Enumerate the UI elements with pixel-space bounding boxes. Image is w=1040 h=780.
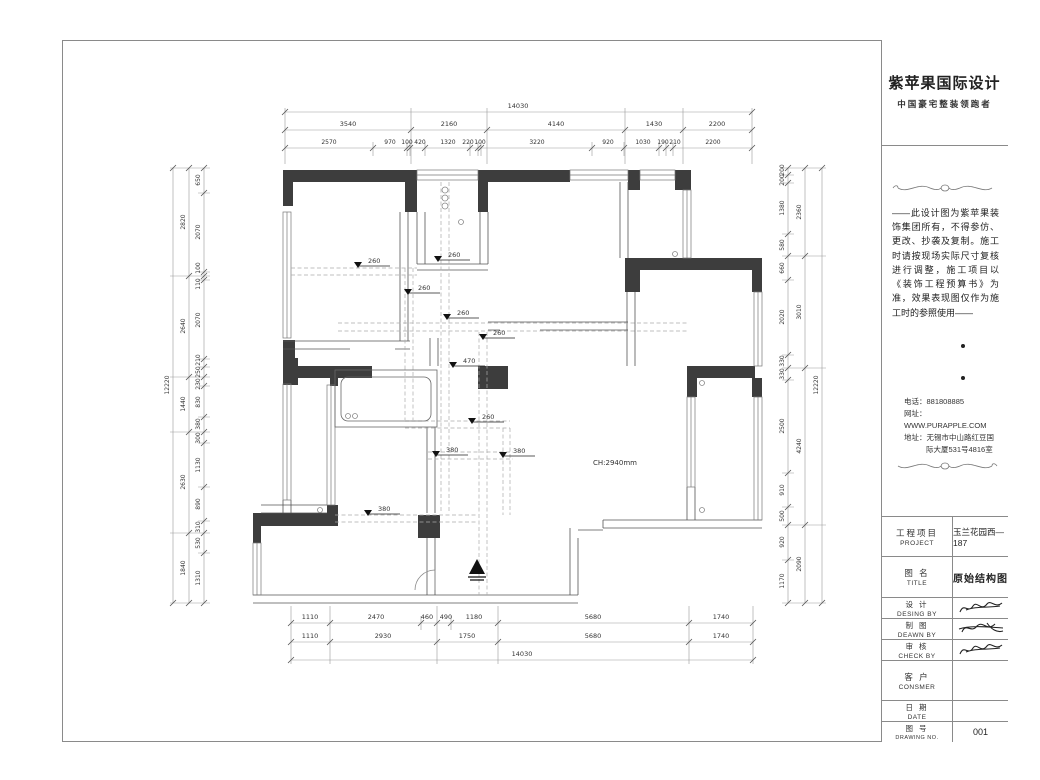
dot <box>961 376 965 380</box>
consumer-value <box>953 661 1008 700</box>
dim-label: 2820 <box>180 214 187 229</box>
check-label-en: CHECK BY <box>898 653 935 660</box>
dim-label: 1380 <box>779 200 786 215</box>
title-label-en: TITLE <box>907 580 927 587</box>
copyright-disclaimer: ——此设计图为紫苹果装饰集团所有，不得参仿、更改、抄袭及复制。施工时请按现场实际… <box>892 206 999 320</box>
check-label-cn: 审 核 <box>905 641 928 652</box>
dim-label: 2200 <box>705 139 720 146</box>
dim-label: 1180 <box>466 613 483 621</box>
structural-walls <box>253 170 762 543</box>
project-value: 玉兰花园西—187 <box>953 517 1008 556</box>
dim-label: 5680 <box>585 613 602 621</box>
dim-label: 210 <box>195 354 202 366</box>
dim-label: 220 <box>462 139 474 146</box>
ceiling-height-note: CH:2940mm <box>593 459 637 467</box>
beam-label: 260 <box>493 329 505 337</box>
beam-label: 260 <box>418 284 430 292</box>
consumer-label-en: CONSMER <box>899 684 936 691</box>
contact-address-line2: 际大厦531号4816室 <box>904 444 1006 456</box>
signature-scribble <box>956 641 1006 659</box>
dim-label: 3010 <box>796 304 803 319</box>
dim-label: 210 <box>669 139 681 146</box>
dim-label: 1440 <box>180 396 187 411</box>
dim-label: 310 <box>195 521 202 533</box>
date-label-cn: 日 期 <box>905 702 928 713</box>
ornament-flourish-icon <box>890 180 1000 196</box>
dim-label: 1320 <box>440 139 455 146</box>
drawn-label-en: DEAWN BY <box>898 632 936 639</box>
dim-label: 110 <box>195 278 202 290</box>
entry-door-arc <box>415 570 435 590</box>
drawn-label-cn: 制 图 <box>905 620 928 631</box>
dim-label: 14030 <box>508 102 529 110</box>
dim-label: 1740 <box>713 632 730 640</box>
dim-label: 330 <box>779 355 786 367</box>
dot <box>961 344 965 348</box>
beam-label: 380 <box>378 505 390 513</box>
dim-label: 1430 <box>646 120 663 128</box>
dim-label: 100 <box>195 262 202 274</box>
dim-label: 200 <box>779 164 786 176</box>
beam-label: 380 <box>513 447 525 455</box>
dim-label: 2500 <box>779 418 786 433</box>
dim-label: 2630 <box>180 474 187 489</box>
drawn-by-row: 制 图DEAWN BY <box>882 618 1008 639</box>
design-label-en: DESING BY <box>897 611 937 618</box>
dim-label: 14030 <box>512 650 533 658</box>
company-tagline: 中国豪宅整装领跑者 <box>882 98 1007 110</box>
date-row: 日 期DATE <box>882 700 1008 721</box>
dim-label: 920 <box>779 536 786 548</box>
drawing-no-label-cn: 图 号 <box>905 723 928 734</box>
divider <box>882 145 1008 146</box>
dim-label: 12220 <box>813 375 820 394</box>
partition-walls <box>253 182 762 603</box>
beam-label: 260 <box>457 309 469 317</box>
consumer-label-cn: 客 户 <box>904 671 929 683</box>
date-value <box>953 701 1008 721</box>
dim-label: 580 <box>779 239 786 251</box>
dim-label: 1750 <box>459 632 476 640</box>
dim-label: 2020 <box>779 309 786 324</box>
dim-label: 1310 <box>195 570 202 585</box>
title-block-table: 工程项目PROJECT 玉兰花园西—187 图 名TITLE 原始结构图 设 计… <box>882 516 1008 742</box>
dim-label: 2470 <box>368 613 385 621</box>
consumer-row: 客 户CONSMER <box>882 660 1008 700</box>
dim-label: 420 <box>414 139 426 146</box>
dim-label: 1170 <box>779 573 786 588</box>
dim-label: 4240 <box>796 438 803 453</box>
project-row: 工程项目PROJECT 玉兰花园西—187 <box>882 516 1008 556</box>
drawing-no-value: 001 <box>953 722 1008 742</box>
beam-label: 260 <box>448 251 460 259</box>
dim-label: 660 <box>779 262 786 274</box>
dim-label: 830 <box>195 396 202 408</box>
dim-label: 1110 <box>302 632 319 640</box>
dim-label: 5680 <box>585 632 602 640</box>
dim-label: 3540 <box>340 120 357 128</box>
dim-label: 2160 <box>441 120 458 128</box>
dim-label: 2360 <box>796 204 803 219</box>
dim-label: 1030 <box>635 139 650 146</box>
dim-label: 2200 <box>709 120 726 128</box>
dim-label: 190 <box>657 139 669 146</box>
dim-label: 910 <box>779 484 786 496</box>
date-label-en: DATE <box>908 714 927 721</box>
dim-label: 1740 <box>713 613 730 621</box>
dim-label: 460 <box>421 613 433 621</box>
beam-label: 470 <box>463 357 475 365</box>
dim-label: 890 <box>195 498 202 510</box>
design-label-cn: 设 计 <box>905 599 928 610</box>
company-logo: 紫苹果国际设计 <box>882 72 1007 93</box>
design-by-row: 设 计DESING BY <box>882 597 1008 618</box>
dim-label: 500 <box>779 510 786 522</box>
signature-scribble <box>956 620 1006 638</box>
dim-label: 970 <box>384 139 396 146</box>
dim-label: 1840 <box>180 560 187 575</box>
dim-label: 530 <box>195 537 202 549</box>
drawing-title-value: 原始结构图 <box>953 557 1008 597</box>
title-label-cn: 图 名 <box>904 567 929 579</box>
dim-label: 300 <box>195 432 202 444</box>
dim-label: 2070 <box>195 312 202 327</box>
dim-label: 920 <box>602 139 614 146</box>
beam-label: 380 <box>446 446 458 454</box>
bathtub <box>335 370 437 427</box>
project-label-en: PROJECT <box>900 540 934 547</box>
contact-website: 网址：WWW.PURAPPLE.COM <box>904 408 1006 432</box>
dim-label: 490 <box>440 613 452 621</box>
dim-label: 100 <box>474 139 486 146</box>
floor-drains <box>318 187 705 513</box>
dim-label: 2930 <box>375 632 392 640</box>
drawing-no-label-en: DRAWING NO. <box>895 735 938 741</box>
drawing-no-row: 图 号DRAWING NO. 001 <box>882 721 1008 742</box>
contact-info: 电话：881808885 网址：WWW.PURAPPLE.COM 地址：无锡市中… <box>904 396 1006 456</box>
dim-label: 380 <box>195 418 202 430</box>
beam-label: 260 <box>482 413 494 421</box>
dim-label: 200 <box>779 174 786 186</box>
dim-label: 1110 <box>302 613 319 621</box>
signature-scribble <box>956 599 1006 617</box>
entry-arrow-icon <box>468 559 486 580</box>
drawing-sheet: 260 260 260 260 260 260 470 380 380 380 … <box>0 0 1040 780</box>
ornament-flourish-icon <box>890 458 1000 474</box>
check-by-row: 审 核CHECK BY <box>882 639 1008 660</box>
dim-label: 2570 <box>321 139 336 146</box>
dim-label: 2070 <box>195 224 202 239</box>
dim-label: 230 <box>195 378 202 390</box>
dim-label: 4140 <box>548 120 565 128</box>
title-block: 紫苹果国际设计 中国豪宅整装领跑者 ——此设计图为紫苹果装饰集团所有，不得参仿、… <box>881 40 1007 742</box>
contact-phone: 电话：881808885 <box>904 396 1006 408</box>
contact-address-line1: 地址：无锡市中山路红豆国 <box>904 432 1006 444</box>
dim-label: 3220 <box>529 139 544 146</box>
project-label-cn: 工程项目 <box>896 527 938 539</box>
dim-label: 330 <box>779 368 786 380</box>
drawing-title-row: 图 名TITLE 原始结构图 <box>882 556 1008 597</box>
dim-label: 1130 <box>195 457 202 472</box>
dim-label: 2090 <box>796 556 803 571</box>
dim-label: 250 <box>195 366 202 378</box>
dim-label: 650 <box>195 174 202 186</box>
dim-label: 100 <box>401 139 413 146</box>
dim-label: 12220 <box>164 375 171 394</box>
dim-label: 2640 <box>180 318 187 333</box>
beam-label: 260 <box>368 257 380 265</box>
